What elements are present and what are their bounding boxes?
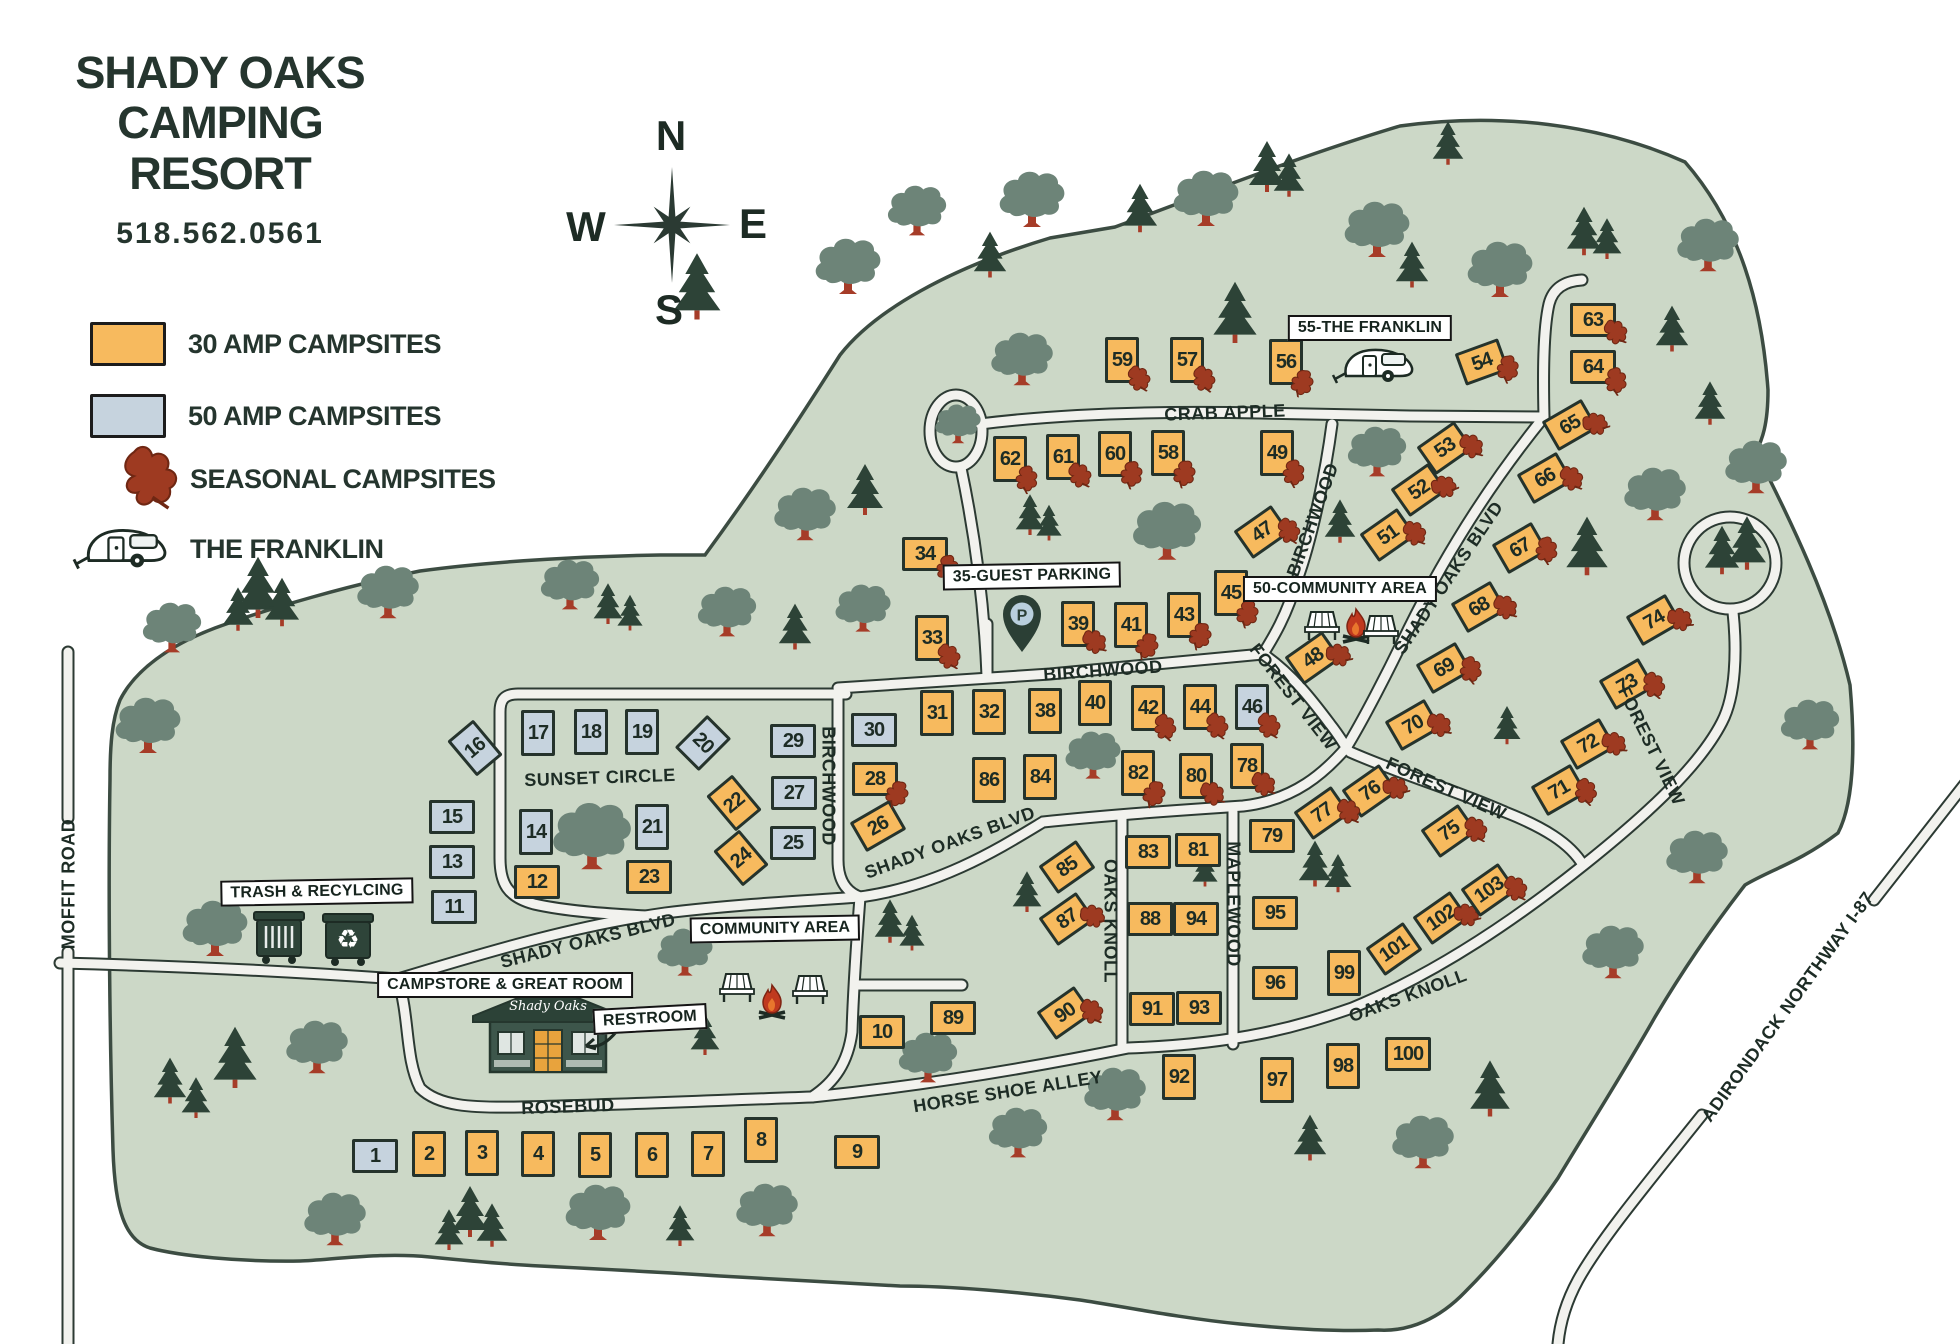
campsite-number: 87	[1052, 904, 1082, 934]
campsite-number: 86	[979, 769, 999, 792]
campsite-number: 71	[1544, 775, 1573, 805]
campsite-box-86: 86	[972, 757, 1006, 803]
campsite-number: 69	[1429, 653, 1458, 683]
legend-item-franklin: THE FRANKLIN	[190, 534, 383, 565]
campsite-box-6: 6	[635, 1132, 669, 1178]
legend-seasonal-leaf-icon	[118, 440, 183, 517]
campsite-number: 90	[1050, 998, 1080, 1028]
compass-west-label: W	[566, 203, 606, 251]
road-label-maplewood: MAPLEWOOD	[1223, 841, 1244, 967]
road-label-moffit-road: MOFFIT ROAD	[59, 819, 80, 949]
poi-label-campstore-great-room: CAMPSTORE & GREAT ROOM	[377, 972, 633, 998]
campsite-number: 7	[703, 1143, 713, 1166]
poi-label-trash-recylcing: TRASH & RECYLCING	[220, 877, 414, 906]
campsite-number: 66	[1530, 463, 1559, 493]
campsite-number: 53	[1430, 433, 1460, 463]
campsite-number: 8	[756, 1129, 766, 1152]
campsite-box-30: 30	[851, 713, 897, 747]
campsite-number: 38	[1035, 700, 1055, 723]
campsite-number: 34	[915, 543, 935, 566]
campsite-number: 91	[1142, 998, 1162, 1021]
campsite-number: 33	[922, 627, 942, 650]
campsite-number: 12	[527, 871, 547, 894]
campsite-number: 15	[442, 806, 462, 829]
campsite-number: 9	[852, 1141, 862, 1164]
campsite-box-95: 95	[1252, 896, 1298, 930]
campsite-box-92: 92	[1162, 1054, 1196, 1100]
campsite-number: 100	[1393, 1043, 1423, 1066]
campsite-box-31: 31	[920, 690, 954, 736]
legend-label: 50 AMP CAMPSITES	[188, 401, 441, 432]
compass-south-label: S	[655, 286, 683, 334]
campsite-number: 5	[590, 1144, 600, 1167]
campsite-number: 60	[1105, 443, 1125, 466]
campsite-number: 70	[1398, 710, 1427, 740]
campsite-box-42: 42	[1131, 685, 1165, 731]
campsite-number: 58	[1158, 442, 1178, 465]
campsite-number: 43	[1174, 604, 1194, 627]
50-amp-swatch-icon	[90, 394, 166, 438]
road-label-rosebud: ROSEBUD	[521, 1095, 615, 1119]
campsite-box-49: 49	[1260, 430, 1294, 476]
road-label-oaks-knoll: OAKS KNOLL	[1100, 859, 1121, 983]
campsite-number: 74	[1639, 605, 1668, 635]
campsite-box-19: 19	[625, 709, 659, 755]
recycle-bin-icon: ♻	[323, 914, 373, 966]
campsite-number: 28	[865, 768, 885, 791]
campsite-number: 27	[784, 782, 804, 805]
campsite-number: 11	[444, 896, 463, 919]
campsite-number: 85	[1052, 852, 1082, 882]
campsite-number: 41	[1121, 614, 1141, 637]
campsite-box-98: 98	[1326, 1043, 1360, 1089]
campsite-box-4: 4	[521, 1131, 555, 1177]
legend-label: 30 AMP CAMPSITES	[188, 329, 441, 360]
campsite-number: 93	[1189, 997, 1209, 1020]
campsite-box-7: 7	[691, 1131, 725, 1177]
campsite-number: 78	[1237, 755, 1257, 778]
campsite-box-27: 27	[771, 776, 817, 810]
campsite-number: 44	[1190, 696, 1210, 719]
campsite-box-40: 40	[1078, 680, 1112, 726]
campsite-number: 29	[783, 730, 803, 753]
deciduous-tree-icon	[888, 186, 946, 236]
campsite-box-5: 5	[578, 1132, 612, 1178]
campsite-box-100: 100	[1385, 1037, 1431, 1071]
campsite-number: 96	[1265, 972, 1285, 995]
campsite-number: 82	[1128, 762, 1148, 785]
legend-item-seasonal: SEASONAL CAMPSITES	[190, 464, 496, 495]
campsite-box-18: 18	[574, 709, 608, 755]
road-label-crab-apple: CRAB APPLE	[1164, 400, 1286, 425]
campsite-number: 30	[864, 719, 884, 742]
campsite-box-14: 14	[519, 809, 553, 855]
poi-label-50-community-area: 50-COMMUNITY AREA	[1243, 576, 1437, 602]
campsite-number: 84	[1030, 766, 1050, 789]
campsite-number: 23	[639, 866, 659, 889]
campsite-box-81: 81	[1175, 833, 1221, 867]
campsite-box-44: 44	[1183, 684, 1217, 730]
campsite-number: 47	[1247, 517, 1277, 547]
campsite-box-41: 41	[1114, 602, 1148, 648]
campsite-box-62: 62	[993, 436, 1027, 482]
campsite-number: 77	[1307, 798, 1337, 828]
campsite-box-78: 78	[1230, 743, 1264, 789]
campsite-box-17: 17	[521, 710, 555, 756]
campsite-number: 2	[424, 1143, 434, 1166]
campsite-number: 52	[1404, 475, 1434, 505]
campsite-number: 6	[647, 1144, 657, 1167]
campsite-box-33: 33	[915, 615, 949, 661]
campsite-number: 19	[632, 721, 652, 744]
campsite-number: 25	[783, 832, 803, 855]
svg-text:P: P	[1017, 608, 1028, 625]
campsite-box-15: 15	[429, 800, 475, 834]
campsite-box-38: 38	[1028, 688, 1062, 734]
conifer-tree-icon	[1123, 184, 1157, 232]
campsite-box-88: 88	[1127, 902, 1173, 936]
campsite-number: 97	[1267, 1069, 1287, 1092]
campsite-box-61: 61	[1046, 434, 1080, 480]
legend-franklin-icon	[74, 531, 165, 569]
campsite-box-8: 8	[744, 1117, 778, 1163]
campsite-number: 89	[943, 1007, 963, 1030]
campsite-number: 24	[726, 843, 756, 874]
campsite-number: 39	[1068, 613, 1088, 636]
campsite-box-39: 39	[1061, 601, 1095, 647]
campsite-box-99: 99	[1327, 950, 1361, 996]
legend-label: THE FRANKLIN	[190, 534, 383, 565]
campsite-number: 57	[1177, 349, 1197, 372]
campsite-box-96: 96	[1252, 966, 1298, 1000]
campsite-number: 64	[1583, 356, 1603, 379]
title-line-1: SHADY OAKS	[40, 48, 400, 98]
campsite-number: 48	[1298, 643, 1328, 673]
campsite-box-34: 34	[902, 537, 948, 571]
poi-label-community-area: COMMUNITY AREA	[690, 915, 861, 944]
campsite-number: 79	[1262, 825, 1282, 848]
campsite-number: 94	[1186, 908, 1206, 931]
campsite-box-60: 60	[1098, 431, 1132, 477]
campsite-number: 40	[1085, 692, 1105, 715]
campsite-number: 63	[1583, 309, 1603, 332]
campsite-number: 98	[1333, 1055, 1353, 1078]
campsite-number: 95	[1265, 902, 1285, 925]
campsite-box-2: 2	[412, 1131, 446, 1177]
campsite-number: 18	[581, 721, 601, 744]
campsite-number: 56	[1276, 351, 1296, 374]
campsite-number: 65	[1555, 410, 1584, 440]
campsite-number: 13	[442, 851, 462, 874]
campsite-box-82: 82	[1121, 750, 1155, 796]
campsite-box-23: 23	[626, 860, 672, 894]
campsite-box-79: 79	[1249, 819, 1295, 853]
campsite-number: 62	[1000, 448, 1020, 471]
svg-text:♻: ♻	[336, 925, 359, 955]
campsite-number: 3	[477, 1142, 487, 1165]
campsite-number: 14	[526, 821, 546, 844]
campsite-box-3: 3	[465, 1130, 499, 1176]
campsite-box-9: 9	[834, 1135, 880, 1169]
campsite-number: 20	[688, 728, 719, 759]
campsite-box-93: 93	[1176, 991, 1222, 1025]
campsite-box-97: 97	[1260, 1057, 1294, 1103]
map-title: SHADY OAKS CAMPING RESORT 518.562.0561	[40, 48, 400, 251]
campsite-box-21: 21	[635, 804, 669, 850]
campsite-number: 46	[1242, 696, 1262, 719]
campsite-box-83: 83	[1125, 835, 1171, 869]
legend-label: SEASONAL CAMPSITES	[190, 464, 496, 495]
campsite-number: 10	[872, 1021, 892, 1044]
campsite-box-59: 59	[1105, 337, 1139, 383]
campsite-box-91: 91	[1129, 992, 1175, 1026]
campsite-number: 76	[1355, 776, 1385, 806]
legend-item-50-amp: 50 AMP CAMPSITES	[90, 394, 441, 438]
campsite-number: 72	[1573, 729, 1602, 759]
title-line-2: CAMPING RESORT	[40, 98, 400, 199]
campsite-number: 99	[1334, 962, 1354, 985]
campsite-box-32: 32	[972, 689, 1006, 735]
campsite-number: 59	[1112, 349, 1132, 372]
campsite-box-64: 64	[1570, 350, 1616, 384]
campsite-number: 61	[1053, 446, 1073, 469]
campsite-number: 26	[863, 811, 892, 841]
campsite-number: 4	[533, 1143, 543, 1166]
campsite-box-25: 25	[770, 826, 816, 860]
campsite-number: 83	[1138, 841, 1158, 864]
campsite-number: 75	[1434, 816, 1464, 846]
campsite-box-56: 56	[1269, 339, 1303, 385]
campsite-number: 22	[719, 788, 749, 819]
campsite-box-13: 13	[429, 845, 475, 879]
campsite-number: 49	[1267, 442, 1287, 465]
poi-label-55-the-franklin: 55-THE FRANKLIN	[1288, 315, 1452, 341]
campsite-number: 17	[528, 722, 548, 745]
campsite-box-10: 10	[859, 1015, 905, 1049]
campsite-box-63: 63	[1570, 303, 1616, 337]
campsite-number: 80	[1186, 765, 1206, 788]
campsite-box-43: 43	[1167, 592, 1201, 638]
campsite-number: 45	[1221, 582, 1241, 605]
campsite-box-11: 11	[431, 890, 477, 924]
compass-east-label: E	[739, 200, 767, 248]
poi-label-35-guest-parking: 35-GUEST PARKING	[943, 561, 1122, 590]
campsite-number: 67	[1505, 533, 1534, 563]
campsite-number: 21	[642, 816, 662, 839]
campsite-box-58: 58	[1151, 430, 1185, 476]
deciduous-tree-icon	[816, 239, 881, 294]
campsite-number: 32	[979, 701, 999, 724]
campsite-number: 88	[1140, 908, 1160, 931]
deciduous-tree-icon	[1000, 172, 1065, 227]
campsite-number: 81	[1188, 839, 1208, 862]
legend-item-30-amp: 30 AMP CAMPSITES	[90, 322, 441, 366]
campsite-number: 51	[1373, 520, 1403, 550]
campsite-number: 31	[927, 702, 947, 725]
compass-north-label: N	[656, 112, 686, 160]
campsite-box-46: 46	[1235, 684, 1269, 730]
campsite-box-94: 94	[1173, 902, 1219, 936]
campsite-box-89: 89	[930, 1001, 976, 1035]
campsite-box-28: 28	[852, 762, 898, 796]
campsite-number: 68	[1464, 592, 1493, 622]
compass-rose-icon	[614, 167, 730, 283]
campsite-number: 92	[1169, 1066, 1189, 1089]
campsite-box-84: 84	[1023, 754, 1057, 800]
trash-bin-icon	[254, 912, 304, 964]
campsite-box-57: 57	[1170, 337, 1204, 383]
svg-text:Shady Oaks: Shady Oaks	[509, 999, 587, 1014]
campsite-number: 1	[370, 1145, 380, 1168]
30-amp-swatch-icon	[90, 322, 166, 366]
campsite-number: 42	[1138, 697, 1158, 720]
campsite-number: 54	[1469, 348, 1496, 377]
campsite-box-29: 29	[770, 724, 816, 758]
campsite-box-12: 12	[514, 865, 560, 899]
road-label-birchwood: BIRCHWOOD	[818, 726, 839, 846]
campsite-box-80: 80	[1179, 753, 1213, 799]
campsite-number: 16	[460, 733, 490, 764]
phone-number: 518.562.0561	[40, 217, 400, 251]
campsite-box-1: 1	[352, 1139, 398, 1173]
